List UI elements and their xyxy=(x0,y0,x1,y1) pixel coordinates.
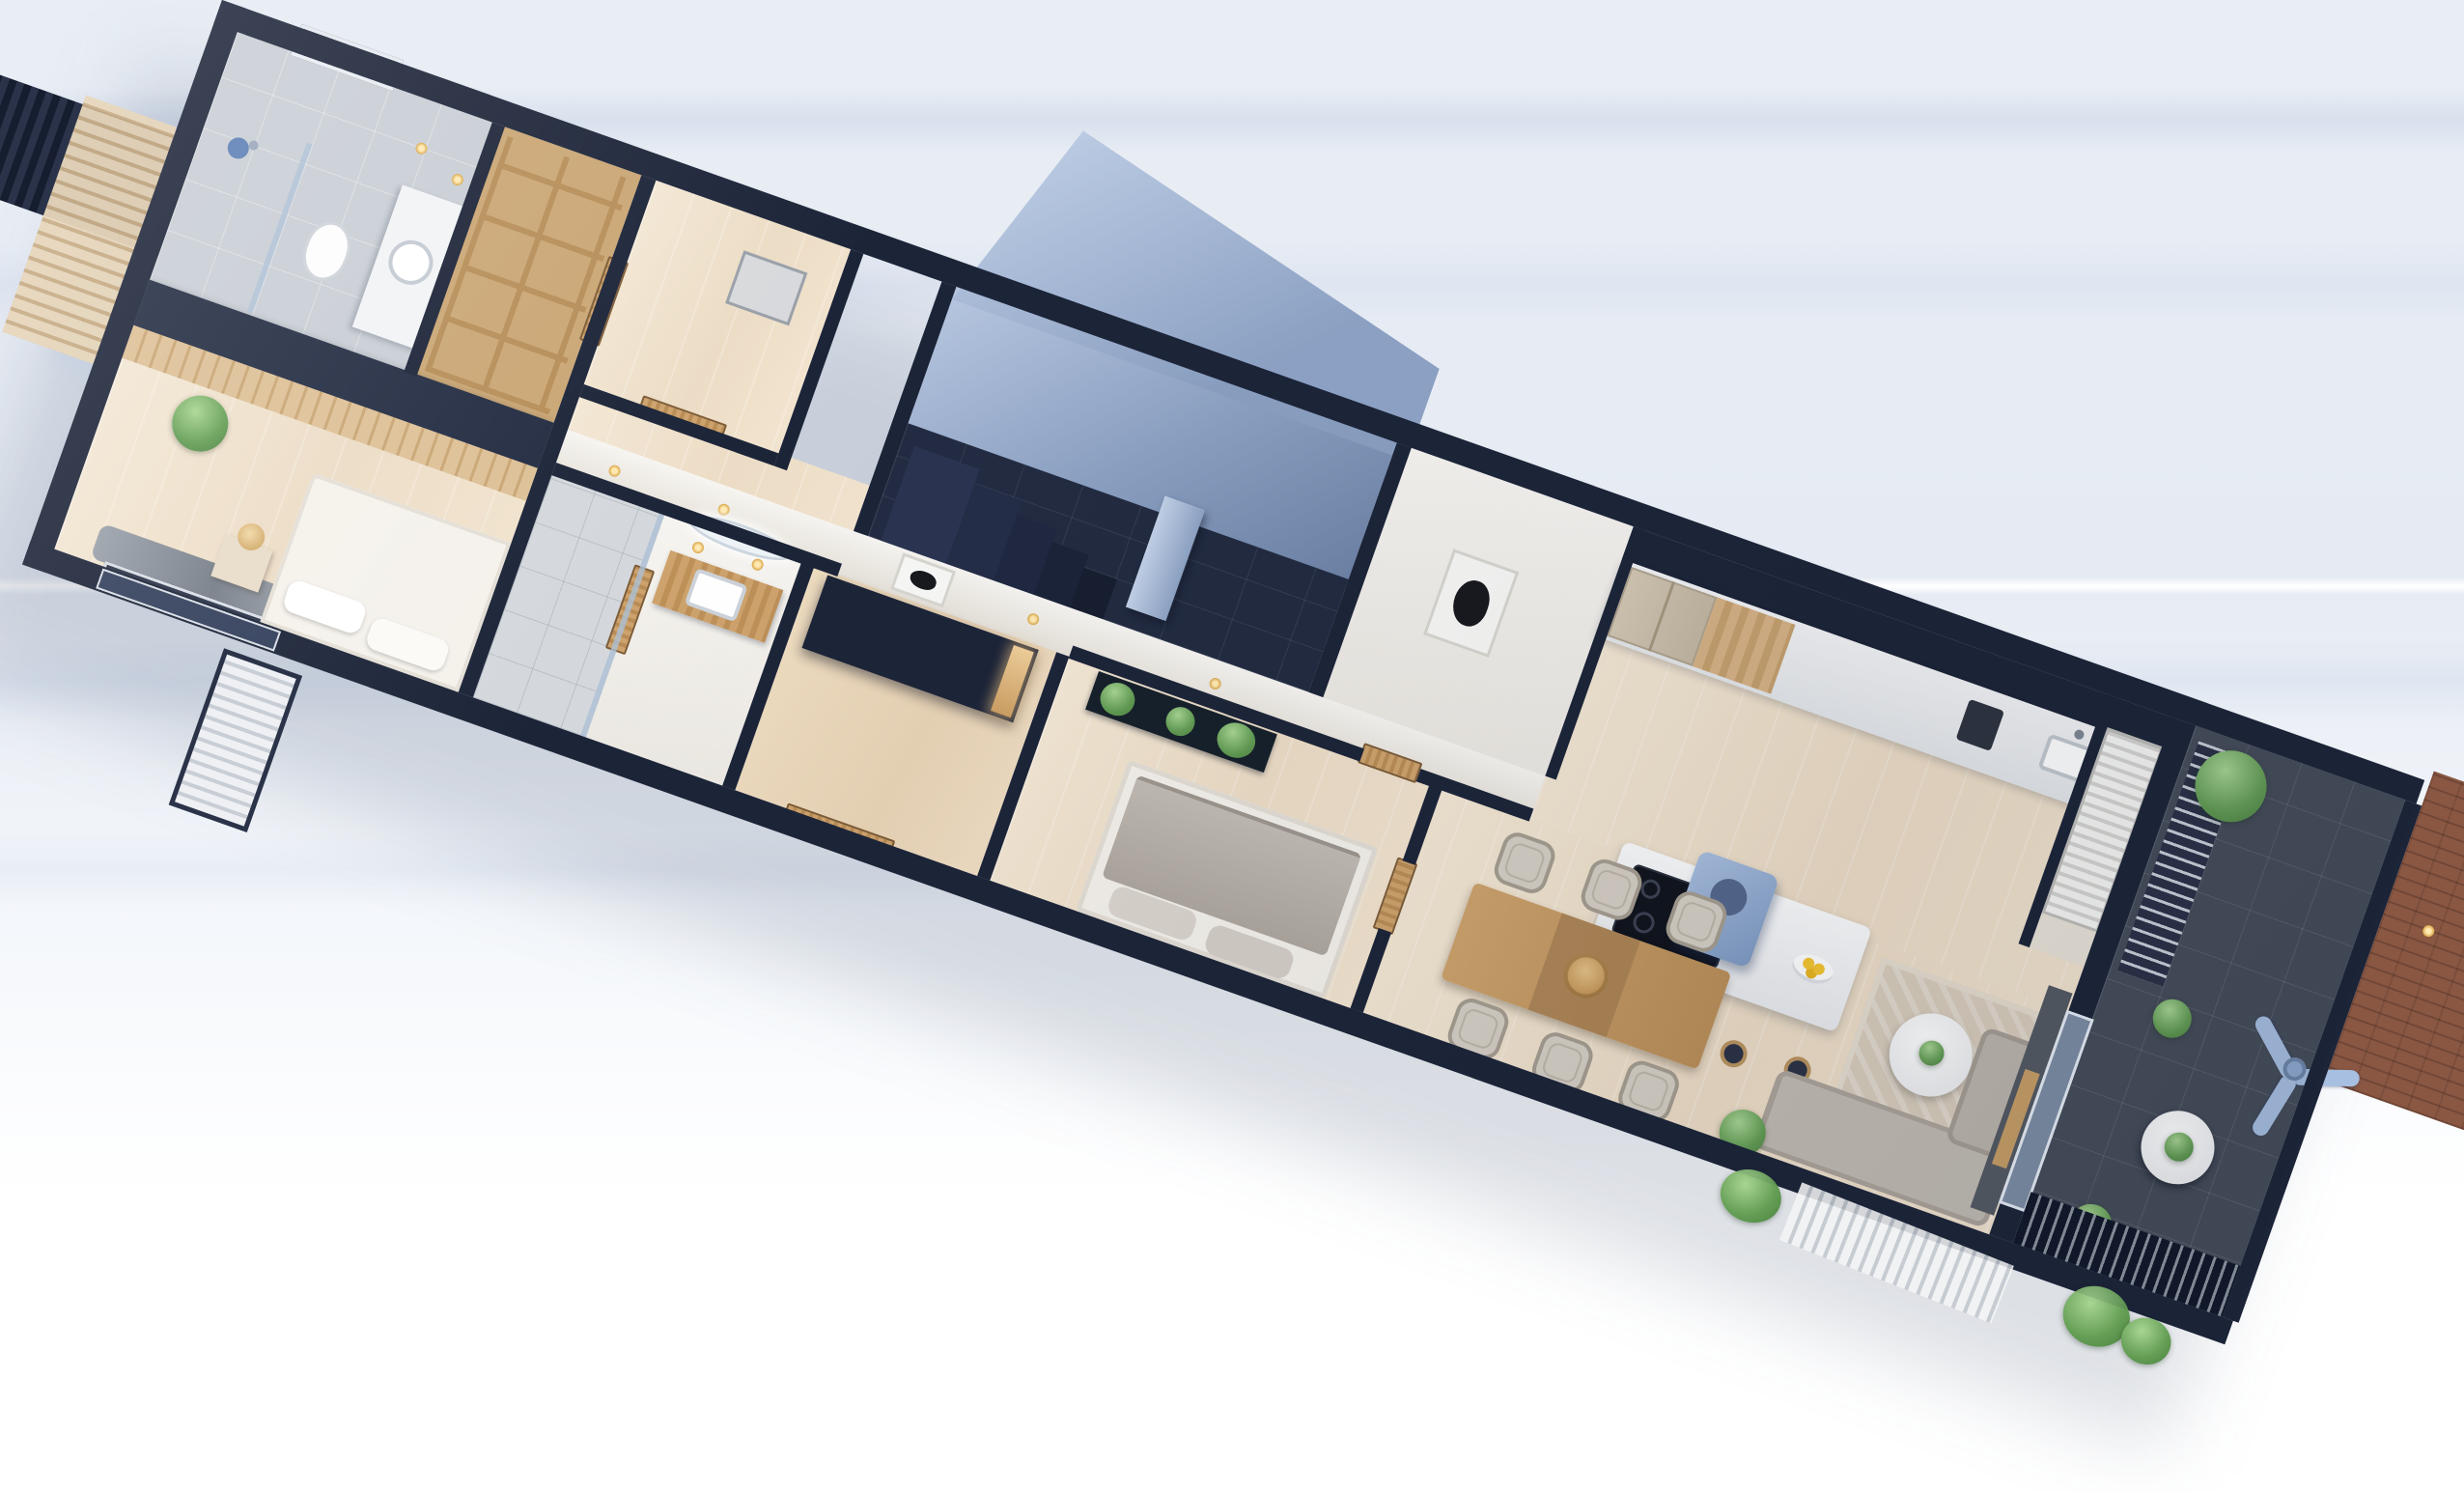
floorplan-render xyxy=(0,0,2464,1492)
art-blob xyxy=(1446,576,1495,632)
ac-louver-panel xyxy=(169,648,302,832)
art-blob xyxy=(907,567,938,593)
building xyxy=(22,0,2424,1344)
